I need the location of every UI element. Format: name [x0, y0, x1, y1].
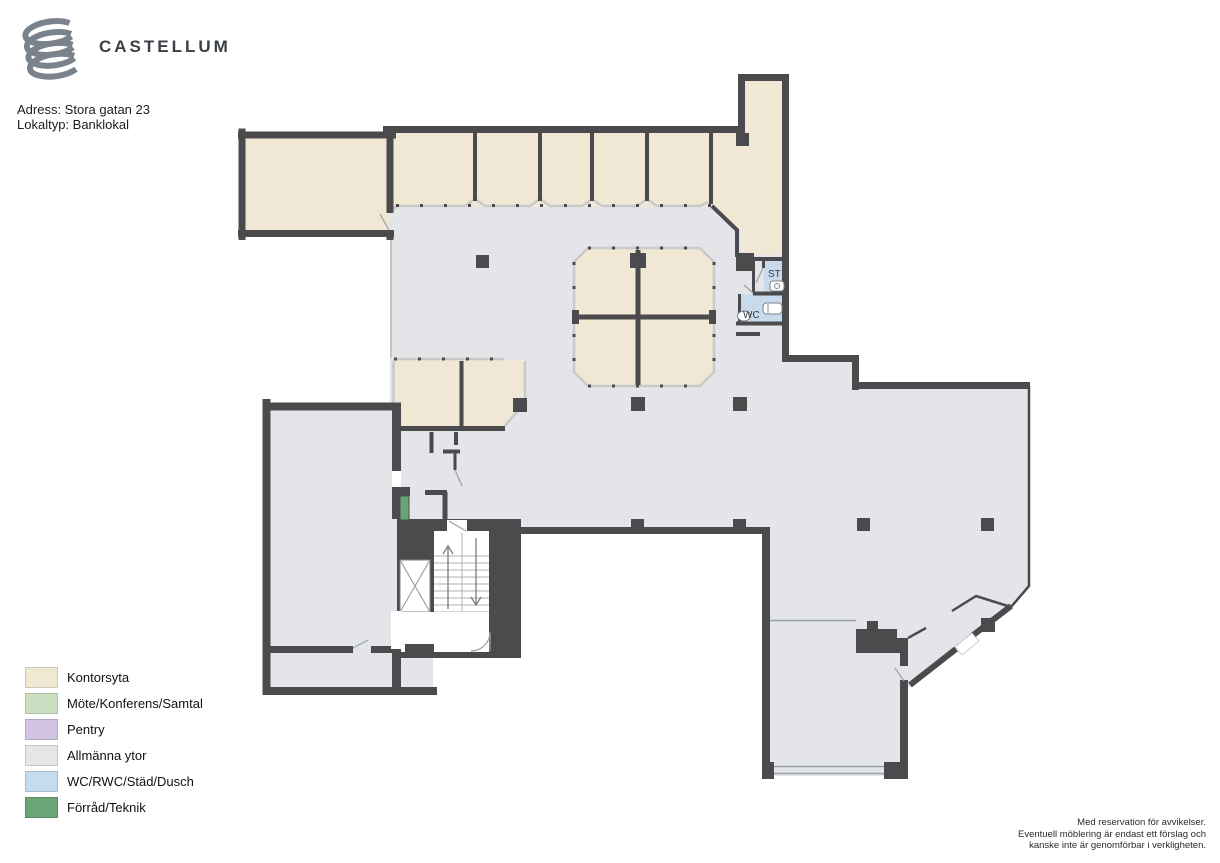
legend-label: Möte/Konferens/Samtal — [67, 696, 203, 711]
legend-swatch-mote — [25, 693, 58, 714]
legend-swatch-kontorsyta — [25, 667, 58, 688]
legend-item-wc: WC/RWC/Städ/Dusch — [25, 768, 203, 794]
disclaimer-line: Med reservation för avvikelser. — [1018, 817, 1206, 829]
legend-item-pentry: Pentry — [25, 716, 203, 742]
legend-swatch-forrad — [25, 797, 58, 818]
legend-item-allmanna: Allmänna ytor — [25, 742, 203, 768]
legend-swatch-wc — [25, 771, 58, 792]
legend-swatch-pentry — [25, 719, 58, 740]
room-office-mid-left-1 — [395, 360, 460, 427]
legend-label: WC/RWC/Städ/Dusch — [67, 774, 194, 789]
legend-label: Kontorsyta — [67, 670, 129, 685]
legend-label: Förråd/Teknik — [67, 800, 146, 815]
wall-niche — [392, 471, 401, 487]
disclaimer-line: kanske inte är genomförbar i verklighete… — [1018, 840, 1206, 852]
disclaimer-line: Eventuell möblering är endast ett försla… — [1018, 829, 1206, 841]
legend-label: Allmänna ytor — [67, 748, 146, 763]
office-row-floor — [390, 130, 711, 207]
room-office-top-left — [246, 136, 389, 233]
legend: Kontorsyta Möte/Konferens/Samtal Pentry … — [25, 664, 203, 820]
legend-label: Pentry — [67, 722, 105, 737]
legend-swatch-allmanna — [25, 745, 58, 766]
room-label-wc: WC — [743, 310, 760, 321]
toilet-wc — [763, 303, 782, 314]
room-label-st: ST — [768, 269, 781, 280]
legend-item-kontorsyta: Kontorsyta — [25, 664, 203, 690]
legend-item-forrad: Förråd/Teknik — [25, 794, 203, 820]
legend-item-mote: Möte/Konferens/Samtal — [25, 690, 203, 716]
room-storage — [400, 496, 409, 520]
disclaimer: Med reservation för avvikelser. Eventuel… — [1018, 817, 1206, 852]
